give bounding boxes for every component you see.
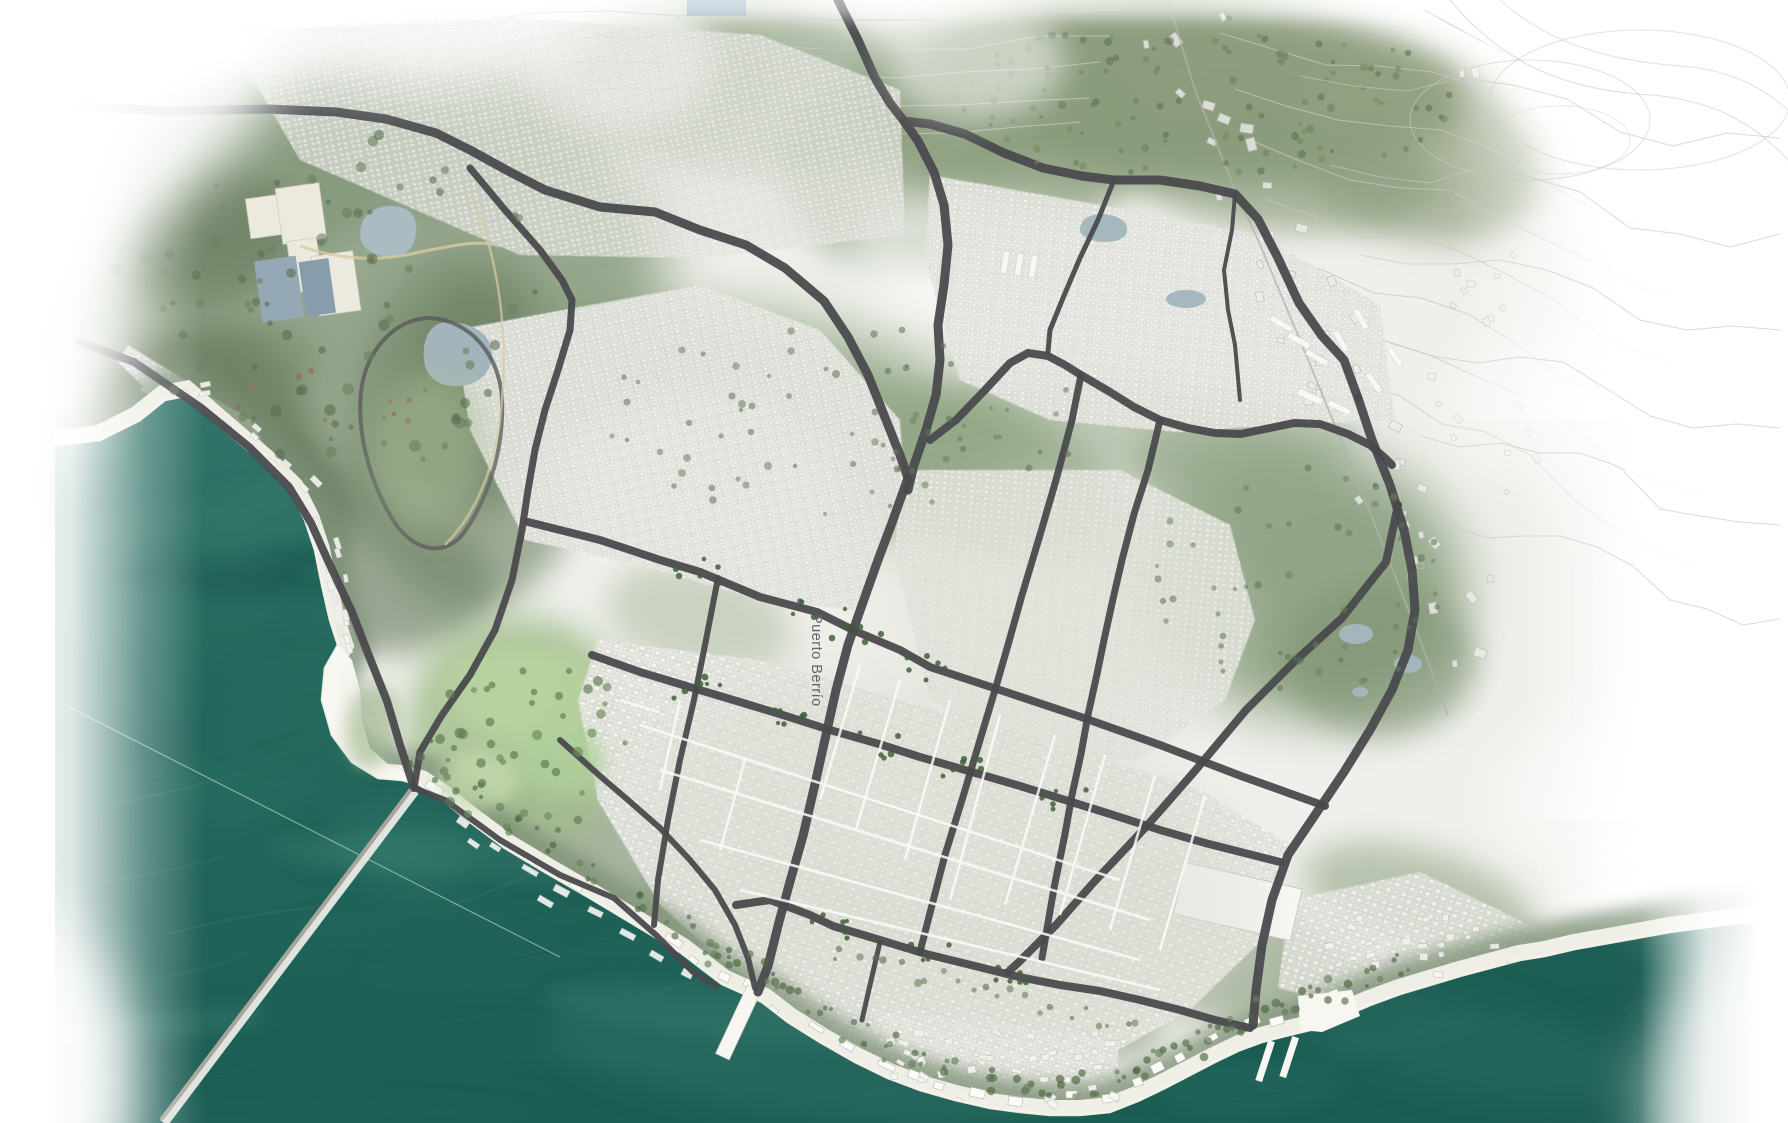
svg-text:Puerto Berrío: Puerto Berrío bbox=[808, 614, 824, 707]
